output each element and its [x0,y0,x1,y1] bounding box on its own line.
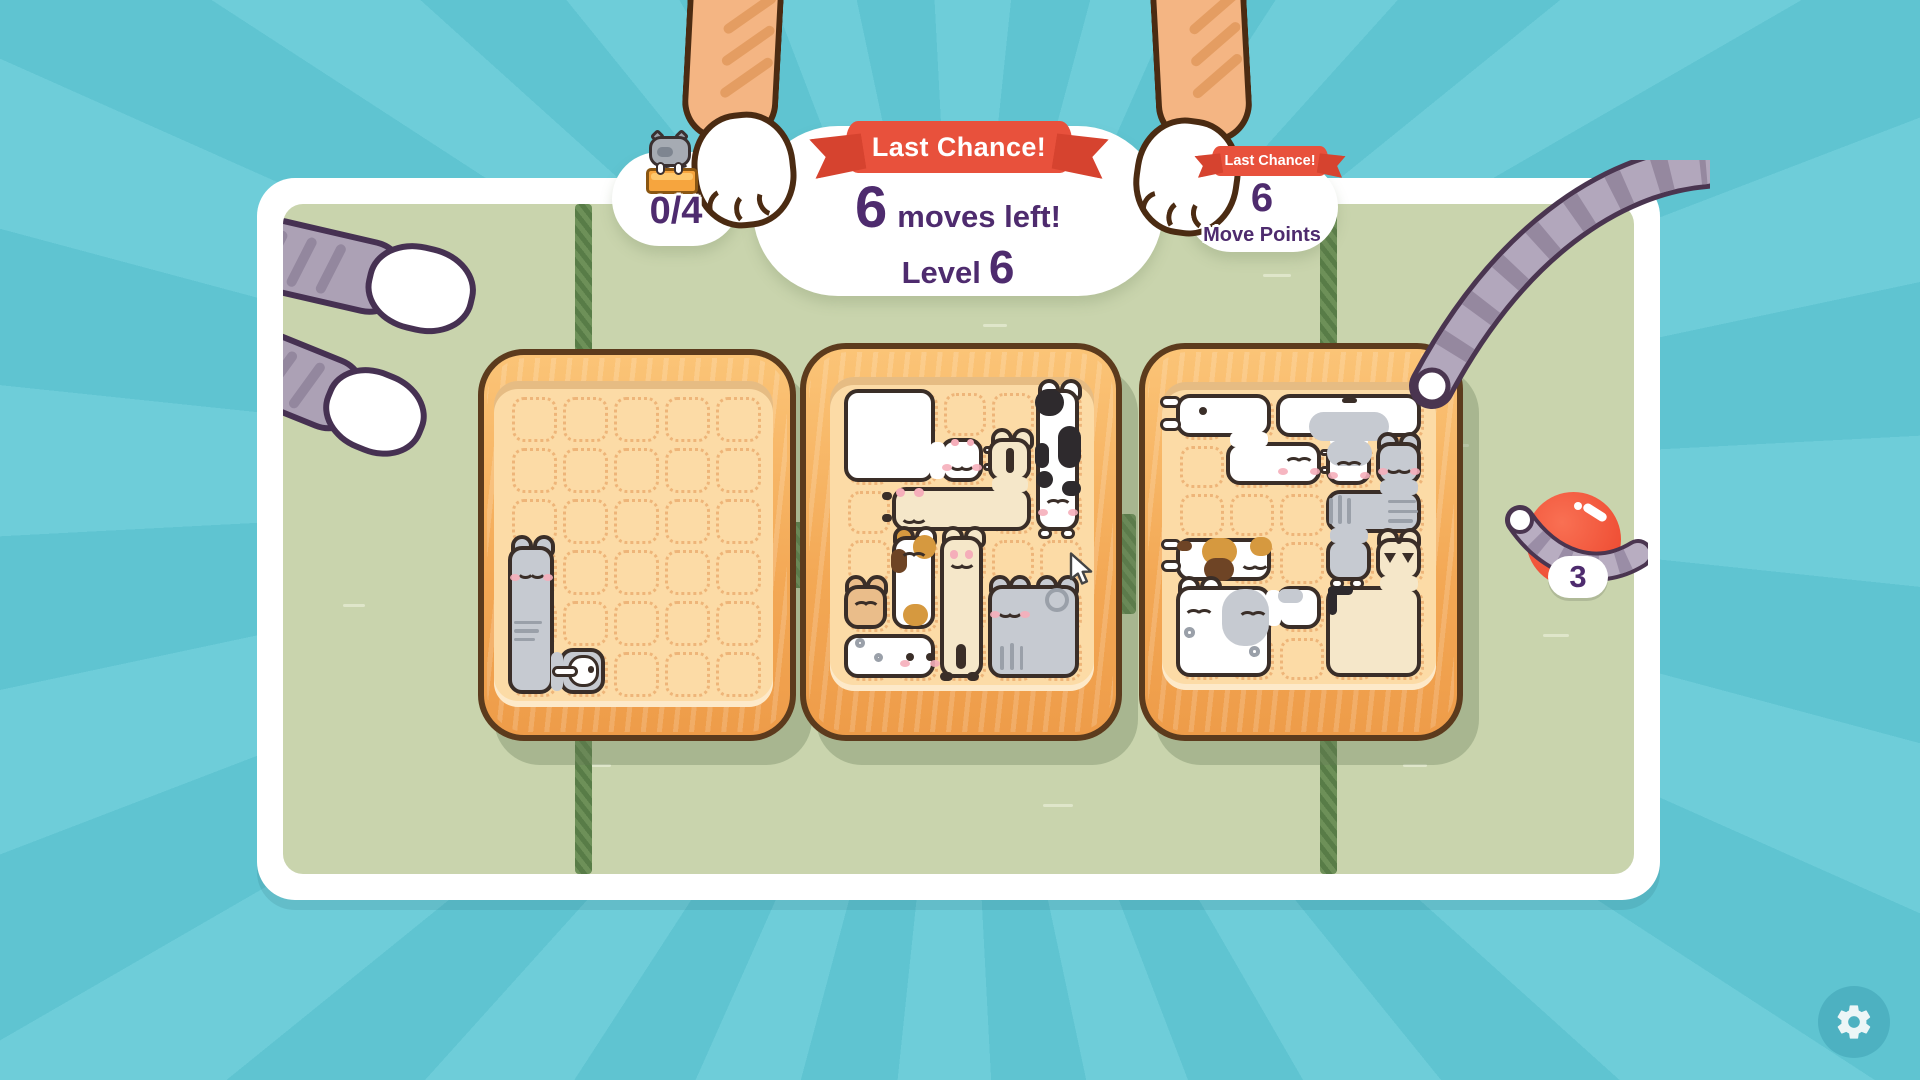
left-basket[interactable] [478,349,796,741]
gray-cat-tail [1370,160,1710,430]
moves-label: moves left! [897,199,1061,234]
gray-bunny-cat-face [506,544,557,595]
level-line: Level6 [753,240,1163,294]
gray-bunny-cat-marking [552,666,579,676]
moves-count: 6 [855,175,887,240]
last-chance-label: Last Chance! [872,132,1046,163]
cat-blush [510,574,520,581]
moves-left-line: 6moves left! [753,174,1163,241]
mat-texture [1043,804,1073,807]
mat-texture [1263,274,1291,277]
icon-cat-paw [674,162,683,175]
move-points-count: 6 [1186,176,1338,221]
mat-texture [983,324,1007,327]
cream-black-tail-cat-body[interactable] [1326,586,1421,677]
cat-blush [1020,611,1030,618]
gray-pair-cats-marking [1000,646,1004,671]
cat-eye [1384,553,1396,563]
last-chance-ribbon: Last Chance! [846,121,1072,173]
gray-pair-cats-marking [1010,643,1014,670]
ball-shine-dot [1574,502,1582,510]
level-number: 6 [989,241,1015,293]
gray-pair-cats-marking [1020,646,1024,671]
gray-bunny-cat-marking [514,629,540,633]
move-points-ribbon: Last Chance! [1212,146,1328,176]
icon-cat-head [649,136,691,167]
paw-stripe [285,236,318,289]
gear-icon [1834,1002,1874,1042]
gray-bunny-cat-marking [514,621,542,625]
move-points-banner-label: Last Chance! [1224,153,1315,169]
mouse-cursor [1068,552,1098,588]
mat-texture [1543,634,1569,637]
icon-cat-paw [656,162,665,175]
cream-black-tail-cat-face [1374,536,1424,584]
move-points-label: Move Points [1166,224,1358,247]
gray-pair-cats-marking [1045,588,1069,613]
mat-texture [1403,764,1427,767]
cat-blush [990,611,1000,618]
paw-stripe [314,243,347,296]
paw-stripe [287,361,327,411]
cat-eye [1402,553,1414,563]
tail-white-tip [1416,370,1448,402]
cream-black-tail-cat-marking [1328,586,1337,615]
boxed-cat-icon [646,130,698,194]
paw-stripe [283,229,289,282]
cat-blush [543,574,553,581]
mat-texture [343,604,365,607]
tail-ball-count-badge: 3 [1548,556,1608,598]
gray-pair-cats-face [986,583,1034,632]
level-label: Level [902,255,981,290]
boxed-cats-counter: 0/4 [606,190,746,233]
gray-bunny-cat-marking [588,666,594,672]
gray-pair-cats[interactable] [806,349,1116,735]
settings-button[interactable] [1818,986,1890,1058]
middle-basket[interactable] [800,343,1122,741]
gray-bunny-cat[interactable] [484,355,790,735]
gray-bunny-cat-marking [514,638,535,642]
